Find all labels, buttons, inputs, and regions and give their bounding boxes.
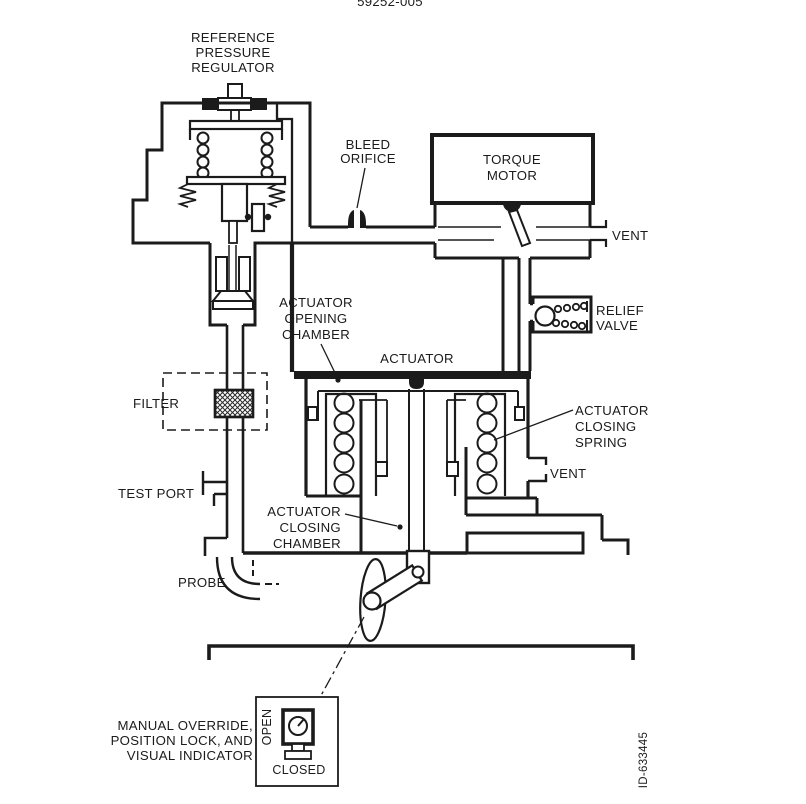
leader-line bbox=[345, 514, 397, 526]
figure-id: ID-633445 bbox=[638, 732, 650, 788]
closing-spring-label: CLOSING bbox=[575, 419, 636, 434]
manual-override-label: VISUAL INDICATOR bbox=[127, 748, 253, 763]
closing-chamber-label: ACTUATOR bbox=[267, 504, 341, 519]
relief-ball bbox=[536, 307, 555, 326]
regulator-valve bbox=[252, 204, 264, 231]
adjusting-screw bbox=[228, 84, 242, 98]
opening-chamber-label: OPENING bbox=[285, 311, 348, 326]
probe-label: PROBE bbox=[178, 575, 226, 590]
closing-spring-label: SPRING bbox=[575, 435, 627, 450]
doc-number: 59252-005 bbox=[357, 0, 423, 9]
closing-chamber-label: CLOSING bbox=[280, 520, 341, 535]
closed-label: CLOSED bbox=[272, 763, 325, 777]
poppet bbox=[213, 291, 253, 301]
test-port: TEST PORT bbox=[118, 471, 227, 506]
closing-spring-right bbox=[478, 394, 497, 494]
leader-line bbox=[357, 168, 365, 208]
bleed-orifice-label: ORIFICE bbox=[340, 151, 396, 166]
filter-label: FILTER bbox=[133, 396, 179, 411]
schematic-page: 59252-005 REFERENCE PRESSURE REGULATOR bbox=[0, 0, 806, 804]
regulator-spring bbox=[198, 133, 273, 179]
closing-spring-left bbox=[335, 394, 354, 494]
override-linkage bbox=[312, 551, 429, 712]
manual-override-label: MANUAL OVERRIDE, bbox=[118, 718, 253, 733]
actuator-plug bbox=[409, 371, 424, 389]
zigzag-spring bbox=[269, 184, 285, 207]
opening-chamber-label: ACTUATOR bbox=[279, 295, 353, 310]
actuator: ACTUATOR VENT AC bbox=[267, 351, 648, 583]
vent-port bbox=[590, 220, 606, 247]
vent-label: VENT bbox=[550, 466, 586, 481]
vent-label: VENT bbox=[612, 228, 648, 243]
torque-motor-label: MOTOR bbox=[487, 168, 537, 183]
actuator-label: ACTUATOR bbox=[380, 351, 454, 366]
relief-valve: RELIEF VALVE bbox=[519, 258, 644, 371]
flapper-blade bbox=[509, 210, 530, 246]
vent-port bbox=[528, 458, 546, 481]
manual-override-label: POSITION LOCK, AND bbox=[111, 733, 253, 748]
filter-element bbox=[215, 390, 253, 417]
probe: PROBE bbox=[178, 557, 279, 599]
opening-chamber-label: CHAMBER bbox=[282, 327, 350, 342]
regulator-label: REGULATOR bbox=[191, 60, 275, 75]
actuator-system-diagram: 59252-005 REFERENCE PRESSURE REGULATOR bbox=[0, 0, 806, 804]
test-port-label: TEST PORT bbox=[118, 486, 194, 501]
regulator-label: PRESSURE bbox=[196, 45, 271, 60]
indicator-gauge bbox=[283, 710, 313, 744]
open-label: OPEN bbox=[260, 709, 274, 746]
position-indicator: OPEN CLOSED MANUAL OVERRIDE, POSITION LO… bbox=[111, 697, 338, 786]
mounting-rail bbox=[209, 646, 633, 660]
orifice-restriction bbox=[360, 210, 366, 228]
torque-motor-label: TORQUE bbox=[483, 152, 541, 167]
clevis-pin bbox=[413, 567, 424, 578]
bleed-orifice-label: BLEED bbox=[346, 137, 391, 152]
torque-motor: TORQUE MOTOR VENT bbox=[432, 135, 648, 258]
zigzag-spring bbox=[180, 184, 196, 207]
bleed-orifice: BLEED ORIFICE bbox=[292, 137, 435, 243]
lever-pivot bbox=[364, 593, 381, 610]
filter: FILTER bbox=[133, 373, 267, 430]
relief-valve-label: RELIEF bbox=[596, 303, 644, 318]
closing-chamber-label: CHAMBER bbox=[273, 536, 341, 551]
orifice-restriction bbox=[348, 210, 354, 228]
regulator-label: REFERENCE bbox=[191, 30, 275, 45]
reference-pressure-regulator: REFERENCE PRESSURE REGULATOR bbox=[133, 30, 310, 553]
closing-spring-label: ACTUATOR bbox=[575, 403, 649, 418]
relief-valve-label: VALVE bbox=[596, 318, 638, 333]
